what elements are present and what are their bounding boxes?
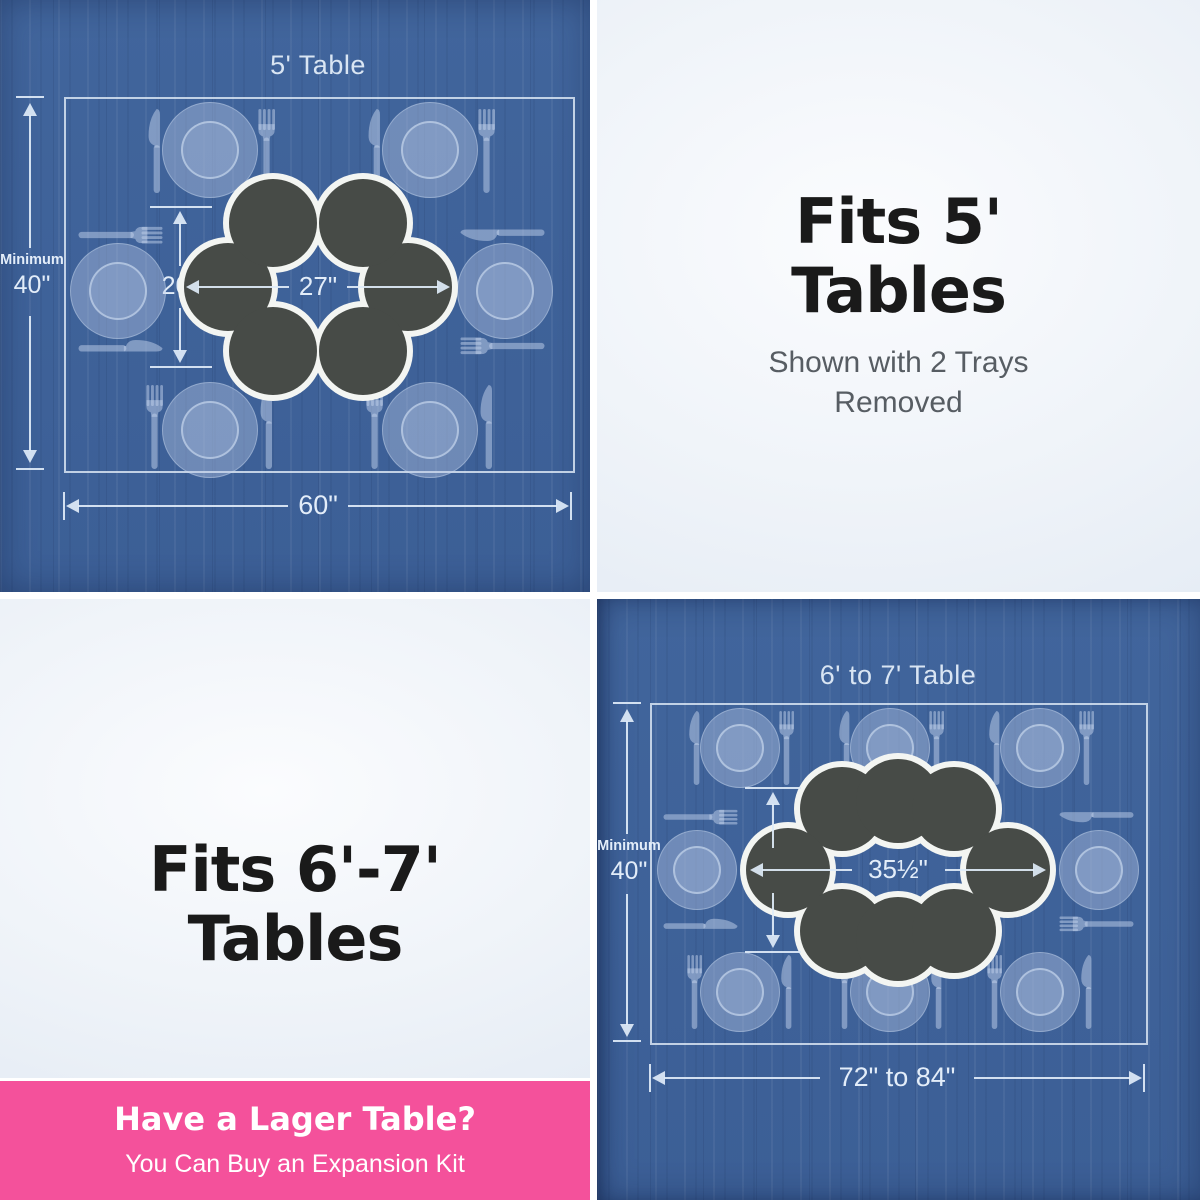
dimension-line — [745, 787, 801, 789]
plate-inner-ring — [716, 968, 764, 1016]
fork-icon — [779, 711, 794, 785]
dimension-line — [150, 206, 212, 208]
fits-5-text-panel: Fits 5' Tables Shown with 2 Trays Remove… — [597, 0, 1200, 592]
dimension-line — [772, 804, 774, 848]
banner-heading: Have a Lager Table? — [0, 1100, 590, 1138]
fits-5-subtext-line2: Removed — [597, 383, 1200, 423]
plate-inner-ring — [1075, 846, 1123, 894]
fork-icon — [1079, 711, 1094, 785]
table-width-label: 60" — [278, 490, 358, 521]
dimension-line — [626, 721, 628, 834]
knife-icon — [1079, 955, 1094, 1029]
knife-icon — [146, 109, 163, 193]
five-foot-table-diagram-panel: 5' Table Minimum 40" 20" 27" 60" — [0, 0, 590, 592]
expansion-kit-banner: Have a Lager Table? You Can Buy an Expan… — [0, 1081, 590, 1200]
minimum-width-label: Minimum 40" — [0, 252, 64, 300]
fork-icon — [1059, 917, 1133, 932]
dimension-line — [150, 366, 212, 368]
fork-icon — [78, 227, 162, 244]
dimension-line — [570, 492, 572, 520]
tray-icon — [912, 889, 996, 973]
plate-inner-ring — [673, 846, 721, 894]
dimension-line — [63, 492, 65, 520]
banner-subtext: You Can Buy an Expansion Kit — [0, 1150, 590, 1179]
fits-5-subtext-line1: Shown with 2 Trays — [597, 343, 1200, 383]
plate-inner-ring — [401, 121, 459, 179]
fits-5-heading-line2: Tables — [597, 256, 1200, 325]
dimension-line — [348, 505, 557, 507]
dimension-line — [945, 869, 1034, 871]
dimension-line — [16, 468, 44, 470]
dimension-line — [179, 308, 181, 351]
dimension-arrowhead — [23, 450, 37, 463]
dimension-line — [198, 286, 289, 288]
minimum-width-label: Minimum 40" — [597, 838, 661, 886]
six-seven-foot-table-diagram-panel: 6' to 7' Table Minimum 40" 20" 35½" 72" … — [597, 599, 1200, 1200]
dimension-line — [1143, 1064, 1145, 1092]
product-infographic: 5' Table Minimum 40" 20" 27" 60" Fits 5'… — [0, 0, 1200, 1200]
dimension-arrowhead — [766, 935, 780, 948]
fork-icon — [146, 385, 163, 469]
table-size-title: 6' to 7' Table — [648, 660, 1148, 691]
dimension-arrowhead — [1129, 1071, 1142, 1085]
dimension-line — [649, 1064, 651, 1092]
fork-icon — [663, 810, 737, 825]
knife-icon — [779, 955, 794, 1029]
fork-icon — [460, 338, 544, 355]
tray-icon — [319, 179, 407, 267]
dimension-arrowhead — [437, 280, 450, 294]
dimension-line — [613, 702, 641, 704]
minimum-word: Minimum — [597, 838, 661, 854]
tray-icon — [319, 307, 407, 395]
plate-inner-ring — [1016, 724, 1064, 772]
dimension-line — [179, 223, 181, 266]
dimension-line — [745, 951, 801, 953]
plate-inner-ring — [401, 401, 459, 459]
minimum-value: 40" — [0, 271, 64, 300]
table-width-label: 72" to 84" — [797, 1062, 997, 1093]
table-size-title: 5' Table — [68, 50, 568, 81]
dimension-arrowhead — [173, 350, 187, 363]
tray-icon — [229, 307, 317, 395]
plate-inner-ring — [716, 724, 764, 772]
fits-6-7-heading-line2: Tables — [0, 904, 590, 973]
tray-ring-width-label: 27" — [288, 271, 348, 302]
plate-inner-ring — [89, 262, 147, 320]
knife-icon — [78, 338, 162, 355]
dimension-line — [772, 893, 774, 936]
fits-5-textblock: Fits 5' Tables Shown with 2 Trays Remove… — [597, 187, 1200, 423]
knife-icon — [1059, 810, 1133, 825]
minimum-word: Minimum — [0, 252, 64, 268]
dimension-line — [78, 505, 288, 507]
fits-6-7-heading-line1: Fits 6'-7' — [0, 835, 590, 904]
tray-icon — [229, 179, 317, 267]
dimension-line — [664, 1077, 820, 1079]
dimension-line — [613, 1040, 641, 1042]
minimum-value: 40" — [597, 857, 661, 886]
dimension-line — [347, 286, 438, 288]
plate-inner-ring — [476, 262, 534, 320]
dimension-line — [29, 115, 31, 248]
dimension-line — [29, 316, 31, 451]
dimension-line — [16, 96, 44, 98]
tray-ring-width-label: 35½" — [848, 854, 948, 885]
knife-icon — [460, 227, 544, 244]
fits-6-7-textblock: Fits 6'-7' Tables — [0, 835, 590, 973]
plate-inner-ring — [1016, 968, 1064, 1016]
plate-inner-ring — [181, 401, 239, 459]
dimension-line — [626, 894, 628, 1025]
knife-icon — [663, 917, 737, 932]
fits-6-7-text-panel: Fits 6'-7' Tables — [0, 599, 590, 1078]
dimension-line — [762, 869, 852, 871]
dimension-arrowhead — [1033, 863, 1046, 877]
knife-icon — [478, 385, 495, 469]
dimension-arrowhead — [620, 1024, 634, 1037]
fits-5-heading-line1: Fits 5' — [597, 187, 1200, 256]
dimension-arrowhead — [556, 499, 569, 513]
plate-inner-ring — [181, 121, 239, 179]
dimension-line — [974, 1077, 1130, 1079]
fork-icon — [478, 109, 495, 193]
